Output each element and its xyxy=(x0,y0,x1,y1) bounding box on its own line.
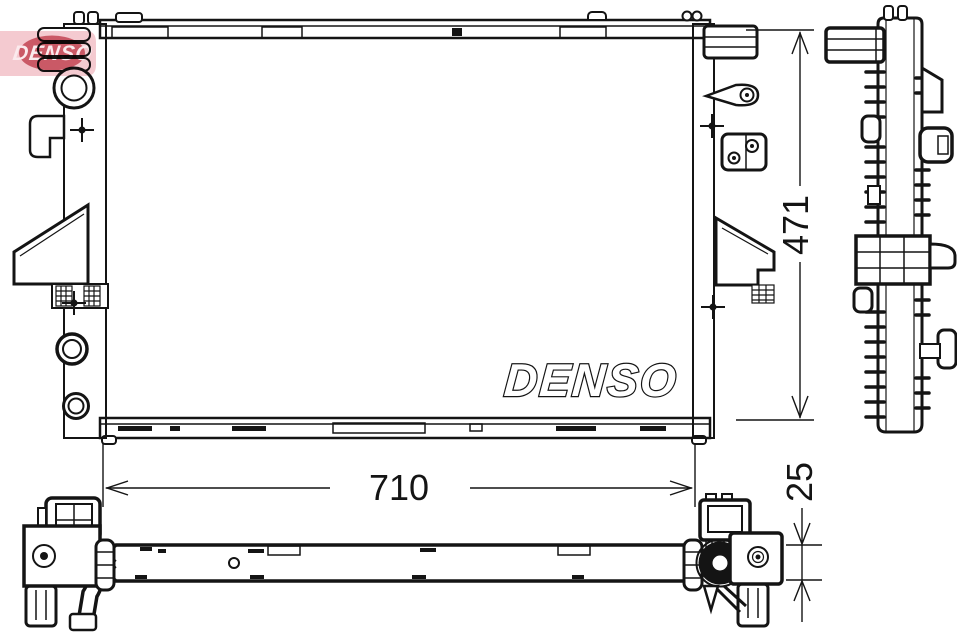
bracket-hatch xyxy=(752,285,774,303)
side-bracket-upper xyxy=(922,68,942,112)
side-left-bump-upper xyxy=(862,116,880,142)
fastener-cross-icon xyxy=(700,114,724,138)
dimension-width-value: 710 xyxy=(369,467,429,508)
side-bracket-lug xyxy=(920,128,952,162)
dimension-thickness: 25 xyxy=(779,462,822,622)
dimension-width: 710 xyxy=(103,443,695,508)
bottom-bar xyxy=(108,545,694,581)
side-view xyxy=(826,6,956,432)
top-header xyxy=(100,12,710,39)
side-tank-profile xyxy=(878,18,922,432)
bottom-left-fitting xyxy=(24,498,114,630)
brand-text: DENSO DENSO xyxy=(503,354,680,406)
top-connector-block xyxy=(704,26,757,58)
header-bump xyxy=(588,12,606,20)
watermark-text: DENSO xyxy=(11,42,94,65)
radiator-technical-drawing: DENSO DENSO xyxy=(0,0,957,632)
side-middle-bracket xyxy=(856,236,955,284)
left-leg xyxy=(26,586,56,626)
right-tank xyxy=(693,24,774,438)
dimension-height-value: 471 xyxy=(775,195,816,255)
right-tank-body xyxy=(693,24,714,438)
side-inlet-pipe xyxy=(826,28,884,62)
dimension-thickness-value: 25 xyxy=(779,462,820,502)
bottom-right-fitting xyxy=(684,494,782,626)
lower-pipe-opening xyxy=(57,334,87,364)
left-mount-bracket xyxy=(14,205,108,308)
side-hook-bracket xyxy=(920,330,956,368)
fastener-cross-icon xyxy=(701,295,725,319)
left-plate xyxy=(24,526,100,586)
fastener-cross-icon xyxy=(70,118,94,142)
side-lug-bracket xyxy=(722,134,766,170)
pointed-foot xyxy=(704,586,718,610)
right-mount-bracket xyxy=(716,218,774,303)
denso-watermark: DENSO xyxy=(0,31,96,76)
drain-opening xyxy=(64,394,89,419)
drawing-canvas: DENSO DENSO xyxy=(0,0,957,632)
front-view: DENSO DENSO xyxy=(14,12,774,445)
brand-text-main: DENSO xyxy=(503,354,680,406)
bottom-header xyxy=(100,418,710,444)
upper-hook-bracket xyxy=(30,116,64,157)
right-leg xyxy=(738,584,768,626)
side-left-bump-lower xyxy=(854,288,872,312)
bottom-view xyxy=(24,494,782,630)
